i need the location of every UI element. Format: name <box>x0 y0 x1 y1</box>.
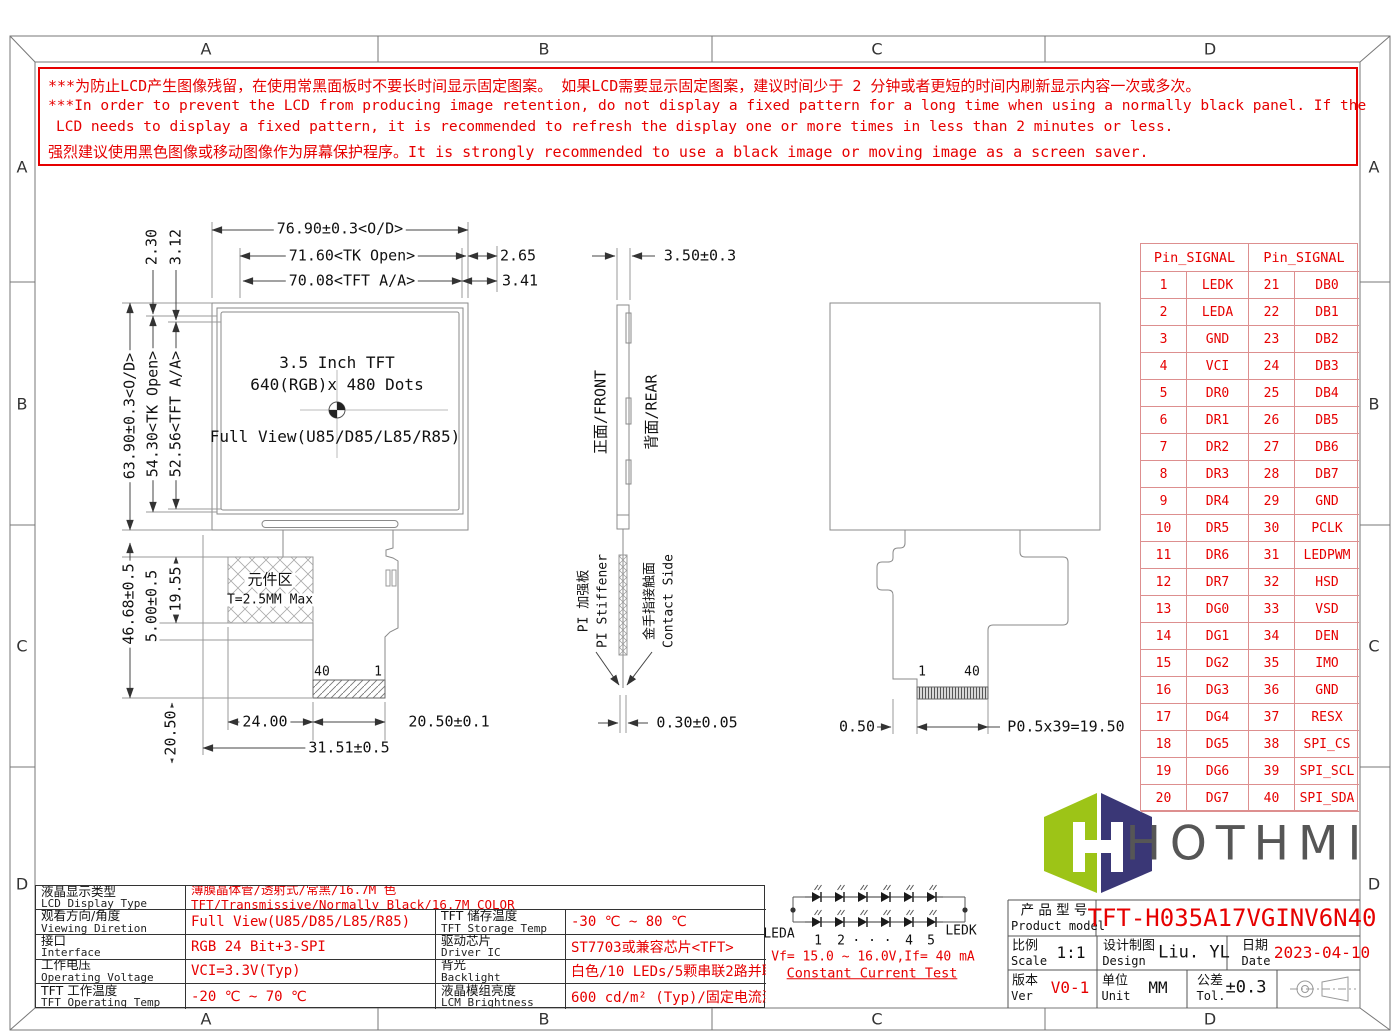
pin-number-cell: 5 <box>1141 380 1187 407</box>
spec-value: 600 cd/m² (Typ)/固定电流测试 <box>566 984 766 1009</box>
spec-value: RGB 24 Bit+3-SPI <box>186 935 436 960</box>
dim-fpc-thickness: 0.30±0.05 <box>656 716 737 731</box>
pin-number-cell: 19 <box>1141 758 1187 785</box>
pin-signal-cell: DG0 <box>1187 596 1249 623</box>
pin-number-cell: 11 <box>1141 542 1187 569</box>
tolerance-label-en: Tol. <box>1197 990 1226 1002</box>
spec-table: 液晶显示类型 LCD Display Type 薄膜晶体管/透射式/常黑/16.… <box>35 885 765 1008</box>
pin-number-cell: 37 <box>1249 704 1295 731</box>
zone-letter-bottom-a: A <box>201 1010 212 1029</box>
scale-value: 1:1 <box>1057 945 1086 961</box>
spec-value: ST7703或兼容芯片<TFT> <box>566 935 766 960</box>
contact-side-label-en: Contact Side <box>663 554 676 648</box>
pin-number-cell: 6 <box>1141 407 1187 434</box>
pin-signal-cell: DB4 <box>1295 380 1359 407</box>
rear-pin-40-label: 40 <box>964 666 980 679</box>
pin-number-cell: 30 <box>1249 515 1295 542</box>
spec-value: -30 ℃ ~ 80 ℃ <box>566 910 766 935</box>
pin-number-cell: 8 <box>1141 461 1187 488</box>
front-pin-40-label: 40 <box>314 666 330 679</box>
led-test-text: Constant Current Test <box>787 967 958 981</box>
pin-signal-cell: DG6 <box>1187 758 1249 785</box>
spec-label: TFT 工作温度TFT Operating Temp <box>36 984 186 1009</box>
spec-value: 白色/10 LEDs/5颗串联2路并联 <box>566 960 766 985</box>
spec-value: Full View(U85/D85/L85/R85) <box>186 910 436 935</box>
side-front-label: 正面/FRONT <box>594 370 609 454</box>
dim-top-offset-2: 3.12 <box>169 229 184 265</box>
product-model-label-cn: 产 品 型 号 <box>1021 904 1088 918</box>
led-index-label: 1 <box>814 935 822 948</box>
pin-number-cell: 25 <box>1249 380 1295 407</box>
pin-signal-cell: GND <box>1187 326 1249 353</box>
dim-tk-open-height: 54.30<TK Open> <box>146 348 161 480</box>
image-retention-warning: ***为防止LCD产生图像残留，在使用常黑面板时不要长时间显示固定图案。 如果L… <box>38 67 1358 166</box>
stiffener-label-en: PI Stiffener <box>597 554 610 648</box>
pin-signal-cell: RESX <box>1295 704 1359 731</box>
pin-signal-cell: DG3 <box>1187 677 1249 704</box>
led-circuit-diagram <box>790 885 967 927</box>
pin-number-cell: 23 <box>1249 326 1295 353</box>
zone-letter-top-b: B <box>539 40 550 59</box>
pin-signal-cell: DR0 <box>1187 380 1249 407</box>
spec-label-display-type: 液晶显示类型 LCD Display Type <box>36 886 186 910</box>
dim-tk-open-offset: 2.65 <box>500 249 536 264</box>
scale-label-en: Scale <box>1011 955 1047 967</box>
contact-side-label-cn: 金手指接触面 <box>644 562 657 640</box>
zone-letter-right-d: D <box>1368 875 1380 894</box>
spec-label: 工作电压Operating Voltage <box>36 960 186 985</box>
pin-signal-cell: IMO <box>1295 650 1359 677</box>
hothmi-logo-text: HOTHMI <box>1126 817 1371 872</box>
pin-signal-cell: DR1 <box>1187 407 1249 434</box>
dim-active-height: 52.56<TFT A/A> <box>169 348 184 480</box>
design-value: Liu. YL <box>1158 945 1230 962</box>
pin-number-cell: 18 <box>1141 731 1187 758</box>
spec-label: TFT 储存温度TFT Storage Temp <box>436 910 566 935</box>
led-index-label: 4 <box>905 935 913 948</box>
led-index-label: 5 <box>927 935 935 948</box>
pin-signal-cell: DB3 <box>1295 353 1359 380</box>
led-anode-label: LEDA <box>763 928 794 941</box>
zone-letter-right-b: B <box>1369 395 1380 414</box>
pin-signal-cell: DR7 <box>1187 569 1249 596</box>
zone-letter-right-a: A <box>1369 158 1380 177</box>
tolerance-value: ±0.3 <box>1226 980 1267 997</box>
screen-resolution-label: 640(RGB)x 480 Dots <box>250 377 423 393</box>
pin-signal-cell: DG7 <box>1187 785 1249 812</box>
dim-lower-height: 46.68±0.5 <box>122 560 137 647</box>
pin-number-cell: 24 <box>1249 353 1295 380</box>
spec-label: 驱动芯片Driver IC <box>436 935 566 960</box>
screen-viewing-label: Full View(U85/D85/L85/R85) <box>210 429 460 445</box>
led-cathode-label: LEDK <box>945 925 976 938</box>
dim-connector-width: 20.50±0.1 <box>408 715 489 730</box>
dim-outline-height: 63.90±0.3<O/D> <box>123 350 138 482</box>
spec-label: 背光Backlight <box>436 960 566 985</box>
pin-signal-cell: LEDK <box>1187 272 1249 299</box>
pin-signal-cell: DB5 <box>1295 407 1359 434</box>
pin-signal-cell: LEDPWM <box>1295 542 1359 569</box>
pin-signal-cell: DR3 <box>1187 461 1249 488</box>
dim-tail-width: 31.51±0.5 <box>305 741 392 756</box>
unit-value: MM <box>1148 980 1167 996</box>
pin-number-cell: 36 <box>1249 677 1295 704</box>
pin-table-header-right: Pin_SIGNAL <box>1249 244 1359 272</box>
zone-letter-right-c: C <box>1368 637 1379 656</box>
datasheet-page: ***为防止LCD产生图像残留，在使用常黑面板时不要长时间显示固定图案。 如果L… <box>0 0 1400 1034</box>
pin-signal-cell: SPI_SDA <box>1295 785 1359 812</box>
zone-letter-left-d: D <box>16 875 28 894</box>
zone-letter-bottom-c: C <box>871 1010 882 1029</box>
pin-signal-cell: SPI_CS <box>1295 731 1359 758</box>
pin-number-cell: 21 <box>1249 272 1295 299</box>
front-pin-1-label: 1 <box>374 666 382 679</box>
date-label-cn: 日期 <box>1242 940 1268 953</box>
spec-value: VCI=3.3V(Typ) <box>186 960 436 985</box>
pin-number-cell: 20 <box>1141 785 1187 812</box>
pin-signal-cell: DG1 <box>1187 623 1249 650</box>
unit-label-en: Unit <box>1102 990 1131 1002</box>
rear-pin-1-label: 1 <box>918 666 926 679</box>
zone-letter-left-a: A <box>17 158 28 177</box>
led-index-label: 2 <box>837 935 845 948</box>
pin-number-cell: 10 <box>1141 515 1187 542</box>
pin-signal-table: Pin_SIGNAL Pin_SIGNAL 1LEDK21DB02LEDA22D… <box>1140 243 1358 811</box>
pin-number-cell: 2 <box>1141 299 1187 326</box>
pin-signal-cell: DB7 <box>1295 461 1359 488</box>
pin-number-cell: 27 <box>1249 434 1295 461</box>
pin-signal-cell: DB0 <box>1295 272 1359 299</box>
zone-letter-top-a: A <box>201 40 212 59</box>
pin-signal-cell: DB6 <box>1295 434 1359 461</box>
pin-signal-cell: DG4 <box>1187 704 1249 731</box>
design-label-cn: 设计制图 <box>1103 940 1155 953</box>
pin-number-cell: 13 <box>1141 596 1187 623</box>
pin-number-cell: 7 <box>1141 434 1187 461</box>
pin-number-cell: 4 <box>1141 353 1187 380</box>
pin-number-cell: 22 <box>1249 299 1295 326</box>
design-label-en: Design <box>1102 955 1145 967</box>
pin-number-cell: 26 <box>1249 407 1295 434</box>
pin-number-cell: 29 <box>1249 488 1295 515</box>
stiffener-label-cn: PI 加强板 <box>578 570 591 632</box>
pin-number-cell: 15 <box>1141 650 1187 677</box>
dim-edge-margin: 0.50 <box>839 720 875 735</box>
dim-thickness: 3.50±0.3 <box>664 249 736 264</box>
version-value: V0-1 <box>1051 980 1090 996</box>
dim-top-offset-1: 2.30 <box>145 229 160 265</box>
dim-outline-width: 76.90±0.3<O/D> <box>274 222 406 237</box>
pin-signal-cell: DR6 <box>1187 542 1249 569</box>
pin-number-cell: 16 <box>1141 677 1187 704</box>
zone-letter-left-b: B <box>17 395 28 414</box>
warning-line-4: 强烈建议使用黑色图像或移动图像作为屏幕保护程序。It is strongly r… <box>48 141 1149 162</box>
pin-signal-cell: DEN <box>1295 623 1359 650</box>
dim-gap-height: 5.00±0.5 <box>145 567 160 645</box>
version-label-cn: 版本 <box>1012 975 1038 988</box>
zone-letter-left-c: C <box>16 637 27 656</box>
pin-signal-cell: GND <box>1295 677 1359 704</box>
led-index-label: · · · <box>852 935 891 948</box>
led-spec-text: Vf= 15.0 ~ 16.0V,If= 40 mA <box>771 951 975 964</box>
pin-number-cell: 33 <box>1249 596 1295 623</box>
projection-symbol-icon <box>1290 977 1356 1001</box>
dim-component-width: 24.00 <box>239 715 290 730</box>
component-area-thickness: T=2.5MM Max <box>224 594 316 607</box>
dim-component-height: 19.55 <box>169 563 184 614</box>
dim-tk-open-width: 71.60<TK Open> <box>286 249 418 264</box>
zone-letter-top-c: C <box>871 40 882 59</box>
pin-number-cell: 17 <box>1141 704 1187 731</box>
warning-line-1: ***为防止LCD产生图像残留，在使用常黑面板时不要长时间显示固定图案。 如果L… <box>48 75 1200 96</box>
warning-line-3: LCD needs to display a fixed pattern, it… <box>56 119 1173 135</box>
pin-number-cell: 14 <box>1141 623 1187 650</box>
pin-number-cell: 12 <box>1141 569 1187 596</box>
side-view-outline <box>617 305 631 688</box>
pin-number-cell: 9 <box>1141 488 1187 515</box>
screen-size-label: 3.5 Inch TFT <box>279 355 395 371</box>
zone-letter-top-d: D <box>1204 40 1216 59</box>
zone-letter-bottom-b: B <box>539 1010 550 1029</box>
pin-signal-cell: DR5 <box>1187 515 1249 542</box>
component-area-label: 元件区 <box>244 573 295 588</box>
dim-active-offset: 3.41 <box>502 274 538 289</box>
rear-view-dimensions <box>877 699 1000 734</box>
pin-number-cell: 35 <box>1249 650 1295 677</box>
pin-signal-cell: PCLK <box>1295 515 1359 542</box>
rear-view-outline <box>830 303 1100 699</box>
product-model-value: TFT-H035A17VGINV6N40 <box>1088 906 1377 930</box>
spec-label: 液晶模组亮度LCM Brightness <box>436 984 566 1009</box>
pin-signal-cell: VCI <box>1187 353 1249 380</box>
pin-number-cell: 39 <box>1249 758 1295 785</box>
pin-number-cell: 34 <box>1249 623 1295 650</box>
date-label-en: Date <box>1242 955 1271 967</box>
pin-signal-cell: DR4 <box>1187 488 1249 515</box>
pin-signal-cell: HSD <box>1295 569 1359 596</box>
pin-signal-cell: GND <box>1295 488 1359 515</box>
pin-number-cell: 31 <box>1249 542 1295 569</box>
dim-tail-height: 20.50 <box>164 707 179 758</box>
warning-line-2: ***In order to prevent the LCD from prod… <box>48 98 1366 114</box>
side-rear-label: 背面/REAR <box>645 374 660 449</box>
pin-signal-cell: DB1 <box>1295 299 1359 326</box>
spec-label: 观看方向/角度Viewing Diretion <box>36 910 186 935</box>
pin-signal-cell: VSD <box>1295 596 1359 623</box>
pin-number-cell: 32 <box>1249 569 1295 596</box>
pin-number-cell: 38 <box>1249 731 1295 758</box>
pin-signal-cell: LEDA <box>1187 299 1249 326</box>
tolerance-label-cn: 公差 <box>1197 975 1223 988</box>
dim-active-width: 70.08<TFT A/A> <box>286 274 418 289</box>
pin-number-cell: 40 <box>1249 785 1295 812</box>
pin-signal-cell: DG5 <box>1187 731 1249 758</box>
pin-signal-cell: DG2 <box>1187 650 1249 677</box>
pin-signal-cell: SPI_SCL <box>1295 758 1359 785</box>
zone-letter-bottom-d: D <box>1204 1010 1216 1029</box>
date-value: 2023-04-10 <box>1274 945 1370 961</box>
pin-number-cell: 1 <box>1141 272 1187 299</box>
dim-pin-pitch: P0.5x39=19.50 <box>1007 720 1124 735</box>
spec-value-display-type: 薄膜晶体管/透射式/常黑/16.7M 色 TFT/Transmissive/No… <box>186 886 766 910</box>
version-label-en: Ver <box>1011 990 1033 1002</box>
scale-label-cn: 比例 <box>1012 940 1038 953</box>
pin-signal-cell: DR2 <box>1187 434 1249 461</box>
pin-number-cell: 28 <box>1249 461 1295 488</box>
unit-label-cn: 单位 <box>1102 975 1128 988</box>
pin-table-header-left: Pin_SIGNAL <box>1141 244 1249 272</box>
spec-label: 接口Interface <box>36 935 186 960</box>
pin-signal-cell: DB2 <box>1295 326 1359 353</box>
pin-number-cell: 3 <box>1141 326 1187 353</box>
spec-value: -20 ℃ ~ 70 ℃ <box>186 984 436 1009</box>
